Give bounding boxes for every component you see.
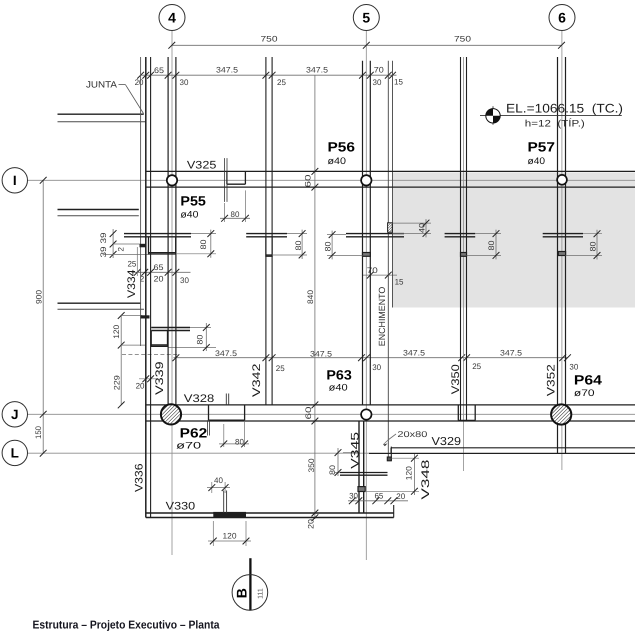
- svg-text:15: 15: [394, 77, 403, 86]
- svg-text:30: 30: [372, 363, 381, 372]
- svg-text:P57: P57: [528, 140, 556, 155]
- svg-text:V342: V342: [251, 364, 263, 398]
- svg-text:70: 70: [374, 66, 385, 75]
- svg-text:ø40: ø40: [180, 210, 198, 221]
- svg-text:347.5: 347.5: [500, 349, 523, 358]
- svg-text:V339: V339: [154, 361, 166, 395]
- svg-text:ø70: ø70: [574, 388, 595, 399]
- svg-text:V325: V325: [187, 160, 217, 172]
- svg-text:65: 65: [154, 66, 165, 75]
- svg-text:ø40: ø40: [328, 156, 347, 167]
- svg-text:70: 70: [367, 266, 379, 275]
- svg-text:120: 120: [223, 531, 238, 540]
- svg-text:6: 6: [558, 9, 566, 25]
- svg-text:V352: V352: [545, 364, 557, 396]
- svg-text:80: 80: [487, 240, 496, 251]
- svg-text:V336: V336: [134, 464, 146, 493]
- svg-text:P56: P56: [328, 140, 356, 155]
- svg-text:30: 30: [180, 276, 189, 285]
- svg-text:20: 20: [135, 78, 144, 87]
- svg-text:P64: P64: [574, 372, 603, 387]
- svg-text:40: 40: [417, 222, 426, 233]
- svg-text:20: 20: [154, 274, 165, 283]
- svg-text:25: 25: [277, 78, 286, 87]
- svg-text:150: 150: [34, 425, 43, 439]
- svg-text:840: 840: [306, 289, 315, 304]
- svg-text:347.5: 347.5: [215, 349, 238, 358]
- svg-text:Estrutura – Projeto Executivo: Estrutura – Projeto Executivo – Planta: [33, 619, 221, 631]
- svg-text:900: 900: [35, 289, 44, 304]
- svg-text:25: 25: [276, 364, 285, 373]
- svg-text:V348: V348: [420, 460, 432, 500]
- svg-text:80: 80: [323, 241, 332, 252]
- svg-text:J: J: [11, 407, 19, 422]
- svg-text:65: 65: [154, 263, 165, 272]
- svg-text:111: 111: [258, 588, 265, 599]
- svg-text:P63: P63: [326, 368, 352, 383]
- svg-text:V345: V345: [349, 432, 361, 469]
- svg-text:750: 750: [454, 35, 472, 44]
- svg-text:ENCHIMENTO: ENCHIMENTO: [377, 287, 387, 347]
- svg-text:80: 80: [588, 241, 597, 252]
- svg-text:120: 120: [405, 466, 414, 481]
- svg-text:20: 20: [136, 381, 145, 390]
- svg-text:80: 80: [199, 239, 208, 250]
- svg-text:60: 60: [303, 174, 312, 188]
- svg-text:20: 20: [306, 518, 315, 529]
- svg-text:347.5: 347.5: [310, 350, 333, 359]
- svg-text:ø40: ø40: [329, 383, 348, 394]
- svg-text:V334: V334: [126, 270, 138, 299]
- svg-text:80: 80: [196, 334, 205, 345]
- svg-text:229: 229: [112, 375, 121, 391]
- svg-text:ø70: ø70: [176, 441, 201, 452]
- svg-text:20: 20: [396, 492, 405, 501]
- svg-text:V350: V350: [450, 364, 462, 394]
- svg-text:40: 40: [214, 476, 223, 485]
- svg-text:80: 80: [294, 240, 303, 251]
- svg-text:750: 750: [261, 35, 279, 44]
- svg-text:25: 25: [127, 260, 136, 269]
- svg-text:350: 350: [307, 458, 316, 473]
- svg-text:25: 25: [472, 362, 481, 371]
- svg-text:65: 65: [374, 491, 383, 500]
- svg-text:P55: P55: [180, 193, 206, 208]
- svg-text:30: 30: [180, 78, 189, 87]
- svg-text:347.5: 347.5: [216, 65, 239, 74]
- svg-text:2: 2: [117, 247, 126, 252]
- svg-text:JUNTA: JUNTA: [86, 79, 117, 89]
- svg-text:120: 120: [112, 324, 121, 339]
- svg-text:15: 15: [395, 277, 404, 286]
- svg-text:h=12 (TÍP.): h=12 (TÍP.): [525, 117, 585, 129]
- svg-text:I: I: [13, 173, 17, 188]
- svg-text:60: 60: [304, 406, 313, 420]
- svg-text:V329: V329: [432, 436, 462, 448]
- svg-text:4: 4: [168, 9, 176, 25]
- svg-text:P62: P62: [180, 425, 208, 440]
- svg-text:30: 30: [373, 78, 382, 87]
- svg-text:347.5: 347.5: [306, 65, 329, 74]
- svg-text:V330: V330: [166, 501, 196, 513]
- svg-text:30: 30: [349, 491, 358, 500]
- svg-text:30: 30: [569, 363, 578, 372]
- svg-text:5: 5: [362, 9, 370, 25]
- svg-text:80: 80: [328, 464, 337, 475]
- svg-text:347.5: 347.5: [403, 349, 426, 358]
- svg-text:80: 80: [235, 437, 244, 446]
- svg-text:V328: V328: [184, 393, 215, 405]
- svg-text:B: B: [234, 588, 250, 598]
- svg-text:80: 80: [231, 210, 240, 219]
- svg-text:EL.=1066.15 (TC.): EL.=1066.15 (TC.): [506, 101, 623, 115]
- svg-text:20x80: 20x80: [397, 429, 427, 439]
- svg-text:ø40: ø40: [528, 156, 546, 167]
- svg-text:39: 39: [99, 246, 108, 258]
- svg-text:39: 39: [99, 232, 108, 244]
- svg-text:L: L: [11, 446, 19, 461]
